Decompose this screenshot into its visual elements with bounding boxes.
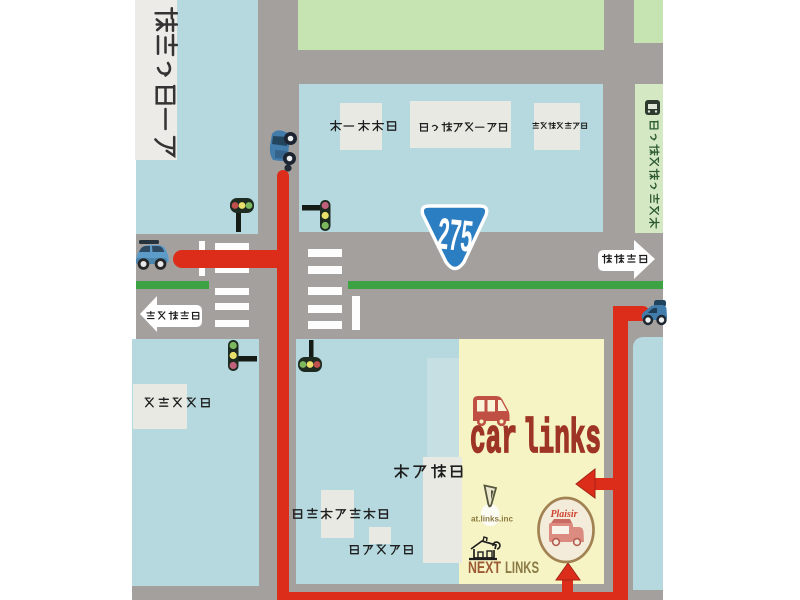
svg-text:at.links.inc: at.links.inc [471, 514, 513, 524]
svg-text:275: 275 [435, 209, 475, 261]
svg-text:Plaisir: Plaisir [551, 508, 579, 520]
svg-text:car: car [470, 413, 517, 467]
svg-text:links: links [523, 413, 601, 467]
svg-text:LINKS: LINKS [505, 558, 539, 577]
svg-text:NEXT: NEXT [468, 558, 501, 577]
